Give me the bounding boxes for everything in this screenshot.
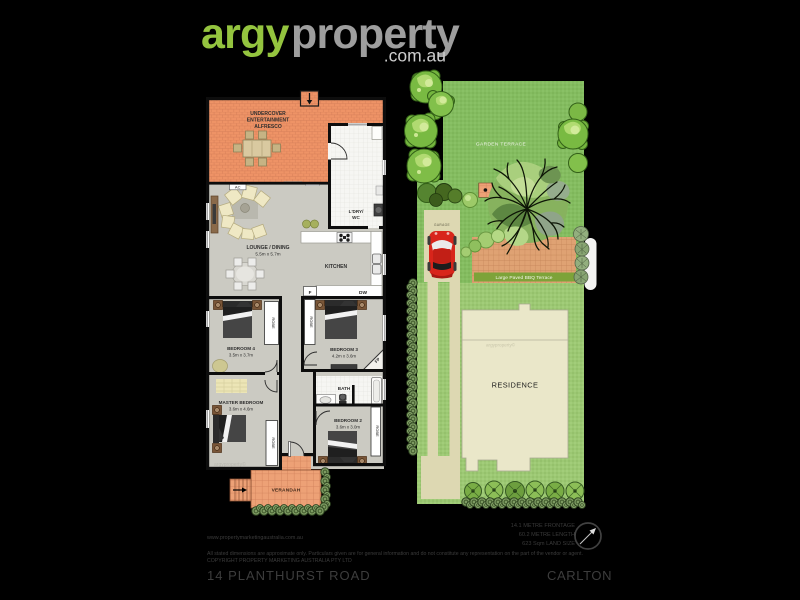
svg-text:ALFRESCO: ALFRESCO bbox=[254, 124, 282, 130]
svg-text:60.2 METRE LENGTH: 60.2 METRE LENGTH bbox=[519, 532, 575, 538]
svg-text:4.2m x 3.6m: 4.2m x 3.6m bbox=[332, 354, 356, 359]
svg-text:ROBE: ROBE bbox=[271, 317, 276, 329]
svg-text:BEDROOM 2: BEDROOM 2 bbox=[334, 418, 362, 423]
svg-text:14.1 METRE FRONTAGE: 14.1 METRE FRONTAGE bbox=[511, 523, 576, 529]
svg-text:argyproperty©: argyproperty© bbox=[486, 342, 516, 348]
svg-text:KITCHEN: KITCHEN bbox=[325, 264, 348, 270]
svg-text:GARDEN TERRACE: GARDEN TERRACE bbox=[476, 142, 526, 148]
svg-text:BEDROOM 4: BEDROOM 4 bbox=[227, 346, 255, 351]
svg-text:3.5m x 3.7m: 3.5m x 3.7m bbox=[229, 353, 253, 358]
svg-text:3.6m x 4.6m: 3.6m x 4.6m bbox=[229, 407, 253, 412]
svg-text:5.5m x 5.7m: 5.5m x 5.7m bbox=[255, 252, 280, 257]
svg-text:BEDROOM 3: BEDROOM 3 bbox=[330, 347, 358, 352]
svg-text:argy: argy bbox=[201, 10, 290, 58]
svg-text:ROBE: ROBE bbox=[309, 316, 314, 328]
svg-text:RESIDENCE: RESIDENCE bbox=[492, 381, 539, 390]
svg-text:BATH: BATH bbox=[338, 386, 351, 391]
svg-text:.com.au: .com.au bbox=[384, 46, 446, 66]
svg-text:GARAGE: GARAGE bbox=[434, 223, 450, 227]
svg-text:VERANDAH: VERANDAH bbox=[272, 488, 301, 494]
svg-text:3.6m x 3.0m: 3.6m x 3.0m bbox=[336, 425, 360, 430]
svg-text:UNDERCOVER: UNDERCOVER bbox=[250, 111, 286, 117]
svg-text:14 PLANTHURST ROAD: 14 PLANTHURST ROAD bbox=[207, 568, 371, 583]
svg-text:F: F bbox=[309, 290, 312, 295]
svg-text:ROBE: ROBE bbox=[271, 437, 276, 449]
svg-text:LOUNGE / DINING: LOUNGE / DINING bbox=[246, 245, 289, 251]
svg-text:All stated dimensions are appr: All stated dimensions are approximate on… bbox=[207, 551, 583, 557]
svg-text:MASTER BEDROOM: MASTER BEDROOM bbox=[219, 400, 264, 405]
svg-text:Large Paved BBQ Terrace: Large Paved BBQ Terrace bbox=[496, 275, 553, 281]
svg-text:COPYRIGHT PROPERTY MARKETING A: COPYRIGHT PROPERTY MARKETING AUSTRALIA P… bbox=[207, 558, 352, 564]
svg-text:ROBE: ROBE bbox=[375, 425, 380, 437]
svg-text:L'DRY/: L'DRY/ bbox=[349, 209, 364, 214]
svg-text:AC: AC bbox=[235, 185, 241, 190]
svg-text:CARLTON: CARLTON bbox=[547, 568, 612, 583]
svg-text:www.propertymarketingaustralia: www.propertymarketingaustralia.com.au bbox=[206, 535, 303, 541]
svg-text:WC: WC bbox=[352, 215, 360, 220]
svg-text:623 Sqm LAND SIZE: 623 Sqm LAND SIZE bbox=[522, 541, 575, 547]
svg-text:DW: DW bbox=[359, 290, 367, 296]
svg-text:ENTERTAINMENT: ENTERTAINMENT bbox=[247, 118, 289, 124]
